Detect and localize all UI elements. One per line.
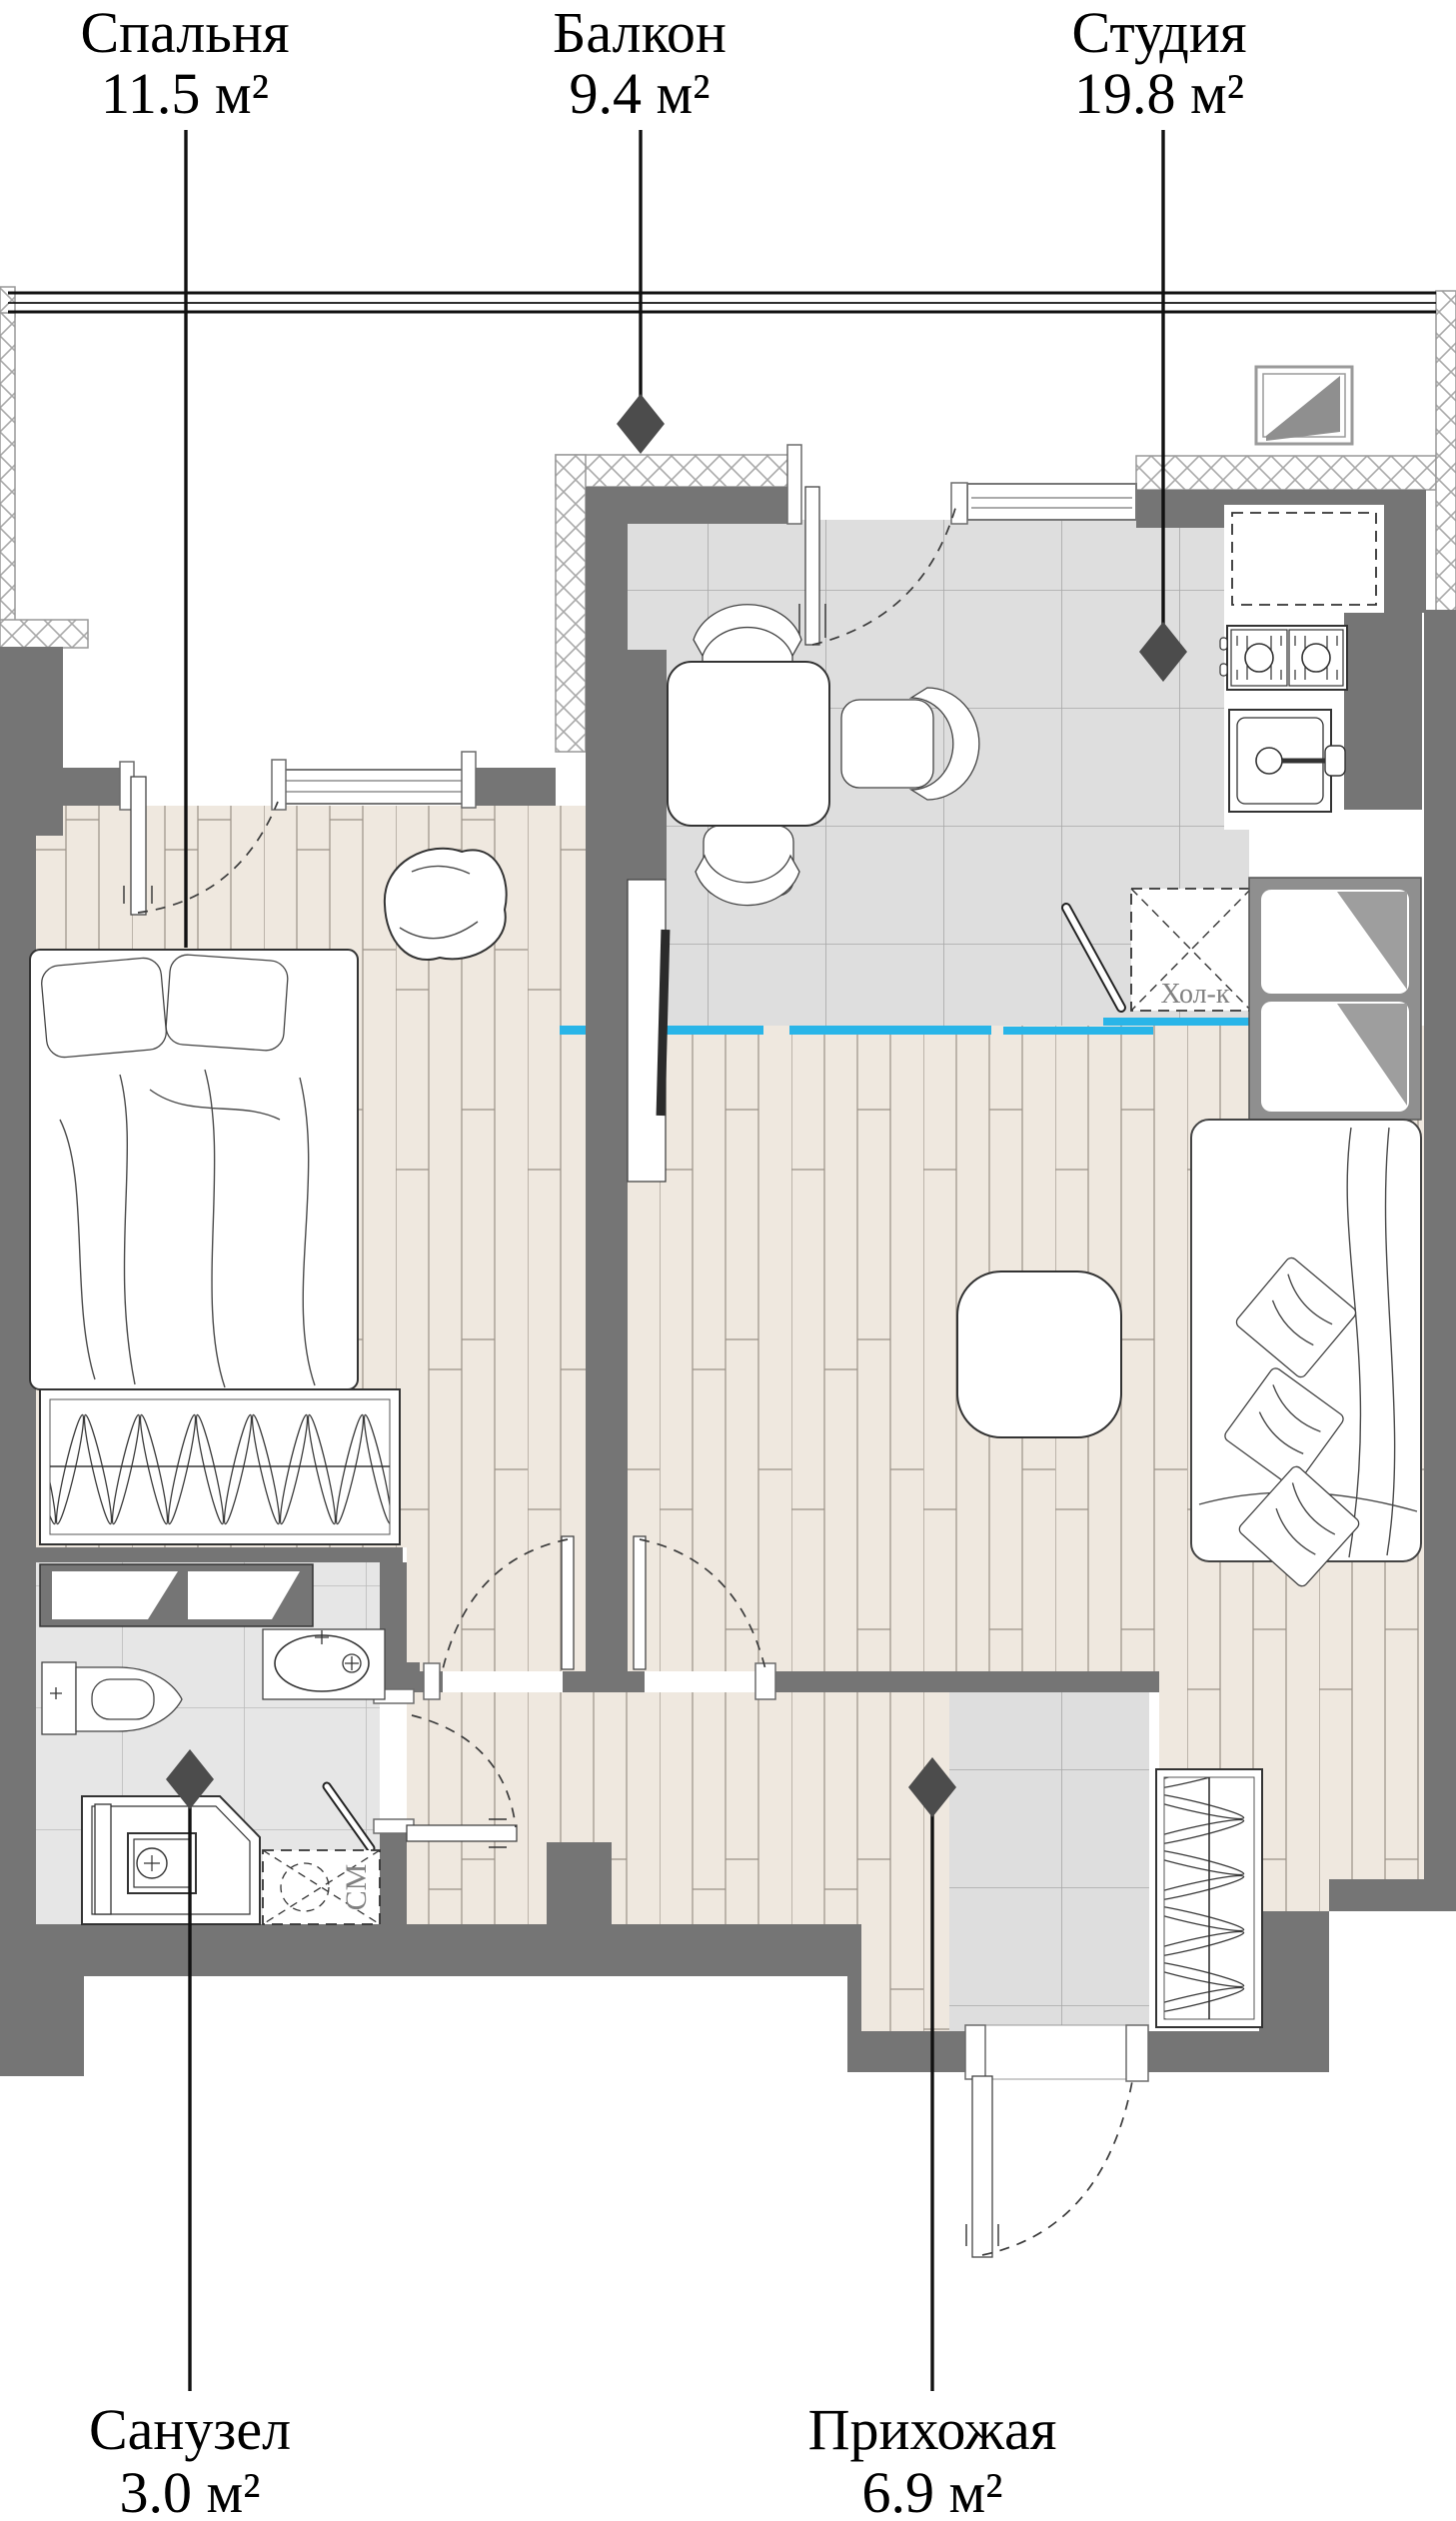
wall-studio-top-leg [1384, 528, 1426, 613]
bathroom-door-leaf [407, 1825, 517, 1841]
cooktop [1220, 626, 1347, 690]
wall-bedroom-left-thick [0, 647, 63, 836]
fridge-label: Хол-к [1161, 979, 1230, 1010]
cyan-track-4 [1103, 1018, 1251, 1026]
label-hallway-area: 6.9 м² [861, 2460, 1002, 2521]
cyan-track-3 [1003, 1027, 1153, 1035]
wall-kitchen-top [586, 487, 799, 524]
hallway-wardrobe [1156, 1769, 1262, 2027]
wall-entry-right [1132, 2031, 1329, 2072]
jamb [965, 2025, 985, 2079]
hatch-wall-left [0, 313, 15, 622]
bedroom-door-leaf [562, 1536, 574, 1669]
kitchen-window [967, 484, 1136, 520]
armchair [385, 849, 507, 960]
bedroom-window [280, 770, 470, 804]
label-balcony-area: 9.4 м² [569, 61, 710, 126]
label-bathroom-area: 3.0 м² [119, 2460, 260, 2521]
wall-entry-left [861, 2031, 972, 2072]
label-hallway-name: Прихожая [808, 2397, 1057, 2462]
hatch-wall-left-step [0, 620, 88, 648]
wall-bedroom-top-b [470, 768, 556, 806]
wall-bathroom-right-lower [380, 1825, 407, 1976]
hatch-wall-right-upper [1436, 291, 1456, 613]
kitchen-sink [1229, 710, 1345, 812]
entry-tile-floor [949, 1692, 1149, 2031]
label-bedroom-name: Спальня [80, 0, 289, 65]
wall-hall-band-b [761, 1671, 1159, 1692]
label-studio-name: Студия [1071, 0, 1246, 65]
jamb [462, 752, 476, 808]
wall-bottom-right-band [1329, 1879, 1456, 1911]
wall-entry-step [847, 1976, 861, 2072]
wall-hall-column [547, 1842, 612, 1976]
jamb [1126, 2025, 1148, 2081]
ac-unit [1256, 367, 1352, 444]
jamb [787, 445, 801, 524]
wall-bottom-right-block [1259, 1911, 1329, 2031]
jamb [951, 483, 967, 524]
wall-bathroom-top [36, 1547, 403, 1562]
washing-machine: СМ [263, 1850, 380, 1924]
hatch-wall-studio-top [1136, 456, 1436, 490]
cyan-track-2 [789, 1026, 991, 1035]
pillow [40, 957, 168, 1059]
label-studio-area: 19.8 м² [1074, 61, 1244, 126]
wall-hall-stub [563, 1671, 645, 1692]
shower [82, 1796, 260, 1924]
jamb [755, 1663, 775, 1699]
wall-bottom-left-band [84, 1924, 861, 1976]
wall-right [1424, 613, 1456, 1911]
wall-kitchen-duct [1344, 610, 1422, 810]
label-bathroom-name: Санузел [89, 2397, 291, 2462]
upper-cabinet-dashed [1232, 513, 1376, 605]
floor-plan-page: Хол-к [0, 0, 1456, 2521]
bedroom-entry-nook-floor [407, 1547, 586, 1671]
coffee-table [957, 1271, 1121, 1437]
jamb [272, 760, 286, 810]
jamb [424, 1663, 440, 1699]
dining-table [668, 662, 829, 826]
bathroom-sink [263, 1629, 385, 1699]
bedroom-balcony-door-leaf [131, 777, 146, 915]
floor-plan-drawing: Хол-к [0, 0, 1456, 2521]
wall-bottom-left-block [0, 1924, 84, 2076]
studio-door-leaf [634, 1536, 646, 1669]
pillow [165, 954, 289, 1052]
entrance-door-leaf [972, 2076, 992, 2257]
label-bedroom-area: 11.5 м² [101, 61, 269, 126]
label-balcony-name: Балкон [553, 0, 727, 65]
kitchen-balcony-door-leaf [805, 487, 819, 645]
hatch-wall-kitchen-side [556, 455, 586, 752]
hatch-wall-kitchen-top [556, 455, 789, 487]
bathroom-cabinet [40, 1564, 313, 1626]
chair-seat [841, 700, 933, 788]
washer-label: СМ [340, 1864, 373, 1911]
wall-partition-bedroom-studio [586, 487, 628, 1671]
entrance-opening [984, 2025, 1132, 2079]
wall-partition-pilaster [628, 650, 667, 880]
